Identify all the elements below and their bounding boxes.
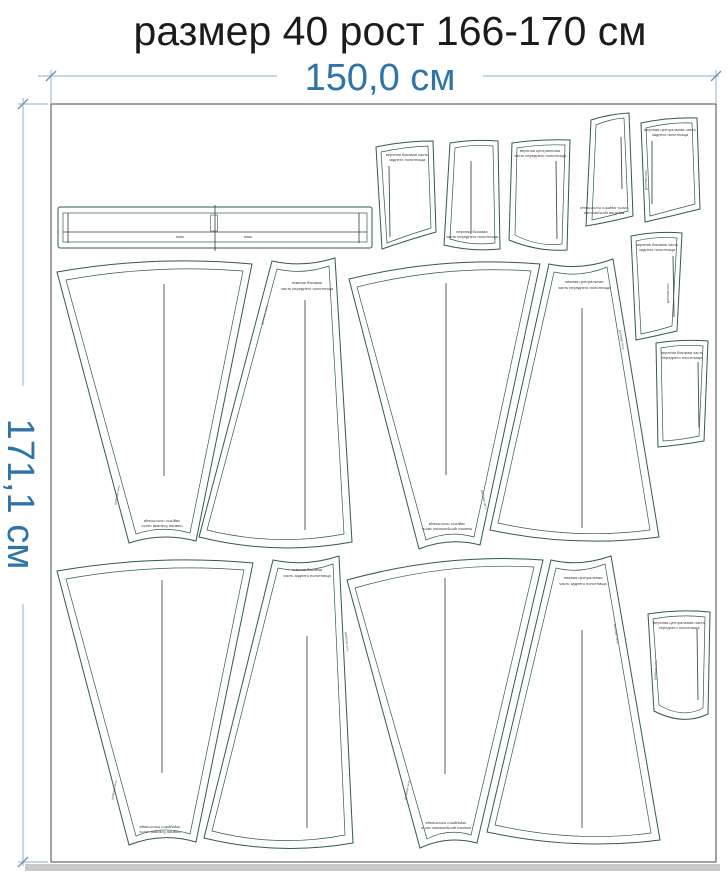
yoke-piece-c: верхняя центральная часть переднего поло… [509, 140, 570, 250]
yoke-piece-g: верхняя боковая часть переднего полотнищ… [656, 340, 708, 447]
piece-label: часть переднего полотнища [446, 234, 499, 239]
piece-label: заднего полотнища [389, 157, 426, 162]
yoke-piece-h: верхняя центральная часть переднего поло… [648, 611, 710, 719]
fabric-shadow [25, 864, 720, 871]
piece-label: пояс [176, 234, 185, 239]
marker-canvas: размер 40 рост 166-170 см 150,0 см 171,1… [0, 0, 728, 874]
piece-label: часть заднего полотнища [559, 581, 607, 586]
waistband-piece: пояс пояс [58, 205, 372, 251]
piece-label: часть переднего полотнища [281, 286, 334, 291]
yoke-piece-f: верхняя боковая часть заднего полотнища … [631, 232, 682, 340]
grain-label: долевая нить [666, 283, 670, 303]
yoke-piece-e: верхняя центральная часть заднего полотн… [641, 118, 700, 222]
yoke-piece-a: верхняя боковая часть заднего полотнища [376, 141, 436, 249]
piece-label: переднего полотнища [425, 821, 467, 826]
grain-label: долевая нить [644, 170, 648, 190]
piece-label: часть переднего полотнища [558, 285, 611, 290]
piece-label: переднего полотнища [662, 355, 704, 360]
piece-label: часть заднего полотнища [283, 573, 331, 578]
yoke-piece-b: верхняя боковая часть переднего полотнищ… [444, 140, 500, 250]
piece-label: нижняя центральная [564, 575, 603, 580]
height-dimension: 171,1 см [0, 98, 48, 867]
piece-label: нижняя центральная [565, 279, 604, 284]
piece-label: часть переднего полотнища [514, 153, 567, 158]
marker-layout-page: размер 40 рост 166-170 см 150,0 см 171,1… [0, 0, 728, 874]
width-dimension: 150,0 см [38, 57, 721, 103]
piece-label: заднего полотнища [639, 247, 676, 252]
height-dimension-label: 171,1 см [0, 419, 41, 570]
piece-label: заднего полотнища [428, 522, 465, 527]
page-title: размер 40 рост 166-170 см [134, 8, 647, 54]
piece-label: пояс [244, 234, 253, 239]
piece-label: нижняя боковая [292, 567, 322, 572]
piece-label: часть заднего полотнища [579, 206, 627, 211]
piece-label: нижняя боковая [292, 280, 322, 285]
piece-label: заднего полотнища [652, 132, 689, 137]
piece-label: переднего полотнища [659, 625, 701, 630]
width-dimension-label: 150,0 см [305, 57, 456, 99]
piece-label: переднего полотнища [139, 825, 181, 830]
piece-label: заднего полотнища [143, 519, 180, 524]
